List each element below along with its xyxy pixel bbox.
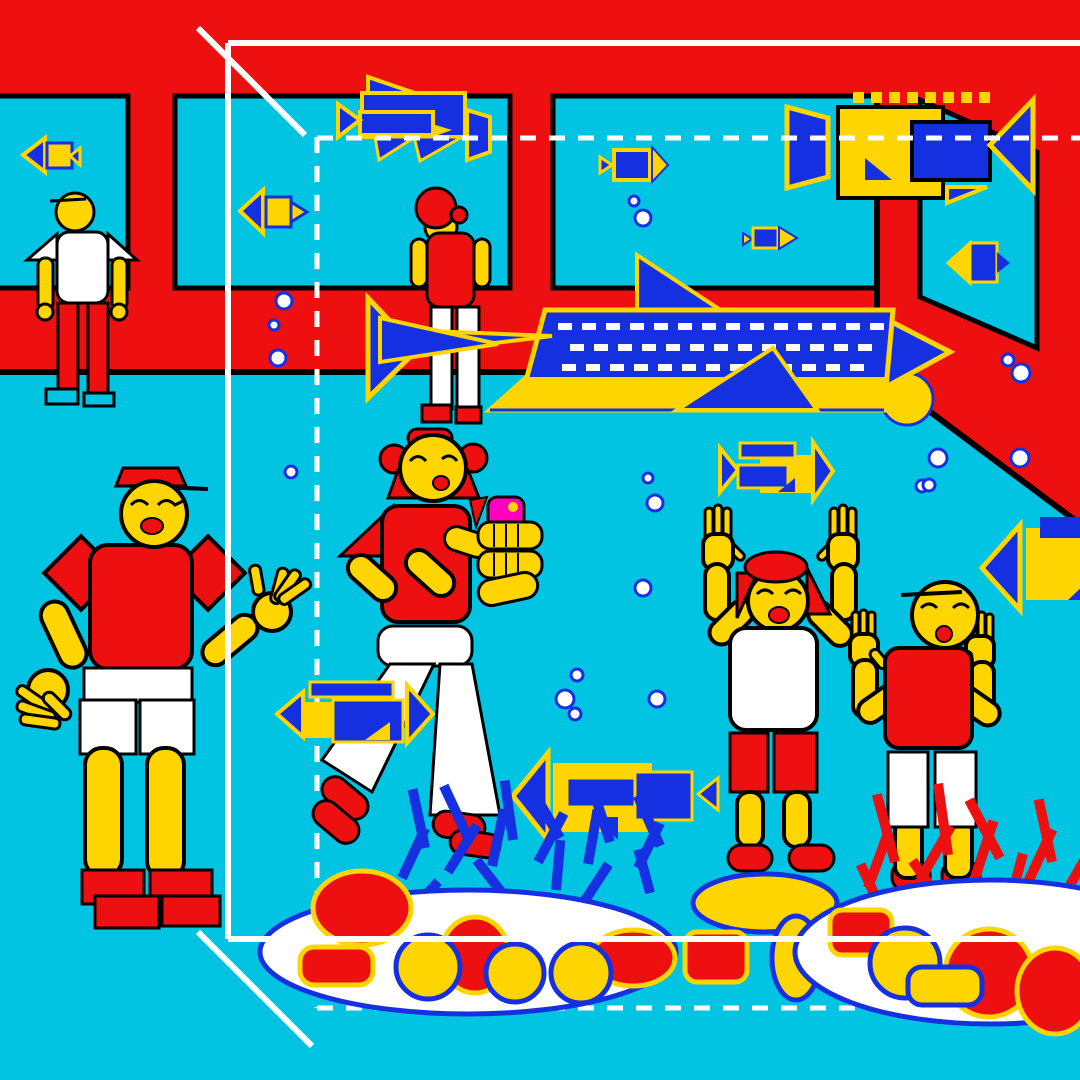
leg <box>431 307 452 409</box>
shirt <box>885 648 972 748</box>
yellow-dot <box>853 92 864 103</box>
shorts <box>774 733 817 792</box>
shark-spot <box>682 364 696 371</box>
fish-tail <box>277 692 303 737</box>
cap-knob <box>451 207 467 223</box>
fish-body <box>360 112 433 135</box>
camera-fish-right-edge <box>982 517 1080 610</box>
fish-marking <box>740 443 795 458</box>
fish-marking <box>333 700 403 742</box>
shark-spot <box>706 364 720 371</box>
aquarium-walls <box>0 0 1080 524</box>
coral-spike-blue <box>634 848 655 894</box>
coral-blob <box>313 871 411 945</box>
mouth <box>936 626 952 642</box>
shark-spot <box>606 323 620 330</box>
bubble <box>556 690 574 708</box>
shark-spot <box>634 364 648 371</box>
shirt <box>730 628 817 730</box>
shark-spot <box>702 323 716 330</box>
shark-spot <box>826 364 840 371</box>
shark-spot <box>570 344 584 351</box>
mouth <box>433 476 449 490</box>
torso <box>57 232 108 303</box>
torso <box>90 545 192 669</box>
man-waving <box>15 468 313 928</box>
fish-head-fin <box>813 442 833 500</box>
bubble <box>635 580 651 596</box>
shark-spot <box>750 323 764 330</box>
camera-fish-over-woman <box>277 682 433 743</box>
fish-body <box>614 150 650 180</box>
shoe <box>789 845 834 871</box>
camera-fish-mid-right <box>720 442 833 500</box>
fish-tail <box>467 110 490 160</box>
hand <box>111 304 127 320</box>
shark-spot <box>582 323 596 330</box>
leg <box>147 748 184 878</box>
bubble <box>569 708 581 720</box>
cap <box>416 188 456 228</box>
shark-spot <box>802 364 816 371</box>
hand <box>37 304 53 320</box>
shoe <box>162 896 220 926</box>
bubble <box>635 210 651 226</box>
leg <box>88 303 108 396</box>
coral-bed-left <box>260 871 676 1014</box>
torso <box>427 233 474 307</box>
shark-spot <box>714 344 728 351</box>
shoe <box>46 389 78 404</box>
shoe <box>95 896 159 928</box>
bubble <box>269 320 279 330</box>
bubble <box>276 293 292 309</box>
arm <box>38 258 53 310</box>
yellow-dot <box>925 92 936 103</box>
fish-head-fin <box>982 525 1020 610</box>
shark-spot <box>846 323 860 330</box>
shoe <box>422 405 451 422</box>
leg <box>85 748 122 876</box>
shoe <box>728 845 772 871</box>
aquarium-illustration <box>0 0 1080 1080</box>
shark-spot <box>558 323 572 330</box>
shark-spot <box>586 364 600 371</box>
bubble <box>1011 449 1029 467</box>
leg <box>737 792 763 847</box>
shark-spot <box>810 344 824 351</box>
fish-marking <box>738 465 788 488</box>
shark-spot <box>786 344 800 351</box>
thumb <box>249 564 265 595</box>
bubble <box>1012 364 1030 382</box>
yellow-dot <box>889 92 900 103</box>
leg <box>784 792 810 847</box>
shark-spot <box>850 364 864 371</box>
arm <box>411 239 427 287</box>
bubble <box>647 495 663 511</box>
shark-spot <box>642 344 656 351</box>
fish-tail <box>698 778 718 810</box>
coral-blob <box>1017 948 1080 1034</box>
camera-fish-bottom-center <box>513 753 718 840</box>
coral-blob <box>908 967 982 1005</box>
bubble <box>923 479 935 491</box>
mouth <box>769 607 789 623</box>
shark-spot <box>690 344 704 351</box>
yellow-dot <box>871 92 882 103</box>
bubble <box>929 449 947 467</box>
shark-spot <box>726 323 740 330</box>
coral-blob <box>300 947 373 985</box>
fish-body <box>970 243 997 282</box>
fish-body <box>1026 528 1080 600</box>
phone-camera-dot <box>508 502 518 512</box>
yellow-dot <box>943 92 954 103</box>
shorts <box>80 700 136 754</box>
fish-marking <box>1040 517 1080 538</box>
fish-tail <box>787 107 828 188</box>
hair-side <box>807 568 830 614</box>
fish-body <box>753 228 778 248</box>
head <box>121 481 187 547</box>
shark-spot <box>822 323 836 330</box>
yellow-dot <box>961 92 972 103</box>
shark-spot <box>858 344 872 351</box>
shark-spot <box>658 364 672 371</box>
shark-spot <box>666 344 680 351</box>
yellow-dot <box>907 92 918 103</box>
shark-spot <box>678 323 692 330</box>
shorts <box>84 668 192 702</box>
arm <box>112 258 127 310</box>
coral-spike-red <box>1066 835 1080 888</box>
mouth <box>141 518 163 534</box>
coral-spike-blue <box>551 840 565 891</box>
bubble <box>649 691 665 707</box>
arm <box>474 239 490 287</box>
shark-spot <box>562 364 576 371</box>
girl-cheering <box>703 505 858 871</box>
fish-body <box>266 197 291 227</box>
hand <box>478 522 542 549</box>
shark-spot <box>610 364 624 371</box>
scene-svg <box>0 0 1080 1080</box>
shark-spot <box>870 323 884 330</box>
bubble <box>1002 354 1014 366</box>
beret <box>745 552 807 582</box>
leg <box>457 307 479 409</box>
shoe <box>456 407 481 423</box>
shark-spot <box>654 323 668 330</box>
head <box>400 435 466 501</box>
shark-spot <box>630 323 644 330</box>
shorts <box>730 733 768 792</box>
coral-blob <box>396 935 460 999</box>
cap-brim <box>50 199 86 201</box>
shoe <box>84 393 114 406</box>
fish-snout <box>912 122 990 180</box>
bubble <box>629 196 639 206</box>
shorts <box>140 700 194 754</box>
shark-spot <box>798 323 812 330</box>
shark-spot <box>738 344 752 351</box>
coral-spike-blue <box>408 788 430 849</box>
shorts <box>888 752 928 827</box>
shark-spot <box>834 344 848 351</box>
shark-spot <box>594 344 608 351</box>
leg <box>430 664 500 815</box>
leg <box>58 303 78 396</box>
fish-marking <box>310 682 393 697</box>
shark-spot <box>618 344 632 351</box>
waist <box>378 626 472 666</box>
bubble <box>643 473 653 483</box>
bubble <box>285 466 297 478</box>
bubble <box>571 669 583 681</box>
fish-tail <box>720 448 738 492</box>
coral-blob <box>486 944 544 1002</box>
shark-spot <box>774 323 788 330</box>
coral-blob <box>551 943 611 1003</box>
yellow-dot <box>979 92 990 103</box>
bubble <box>270 350 286 366</box>
